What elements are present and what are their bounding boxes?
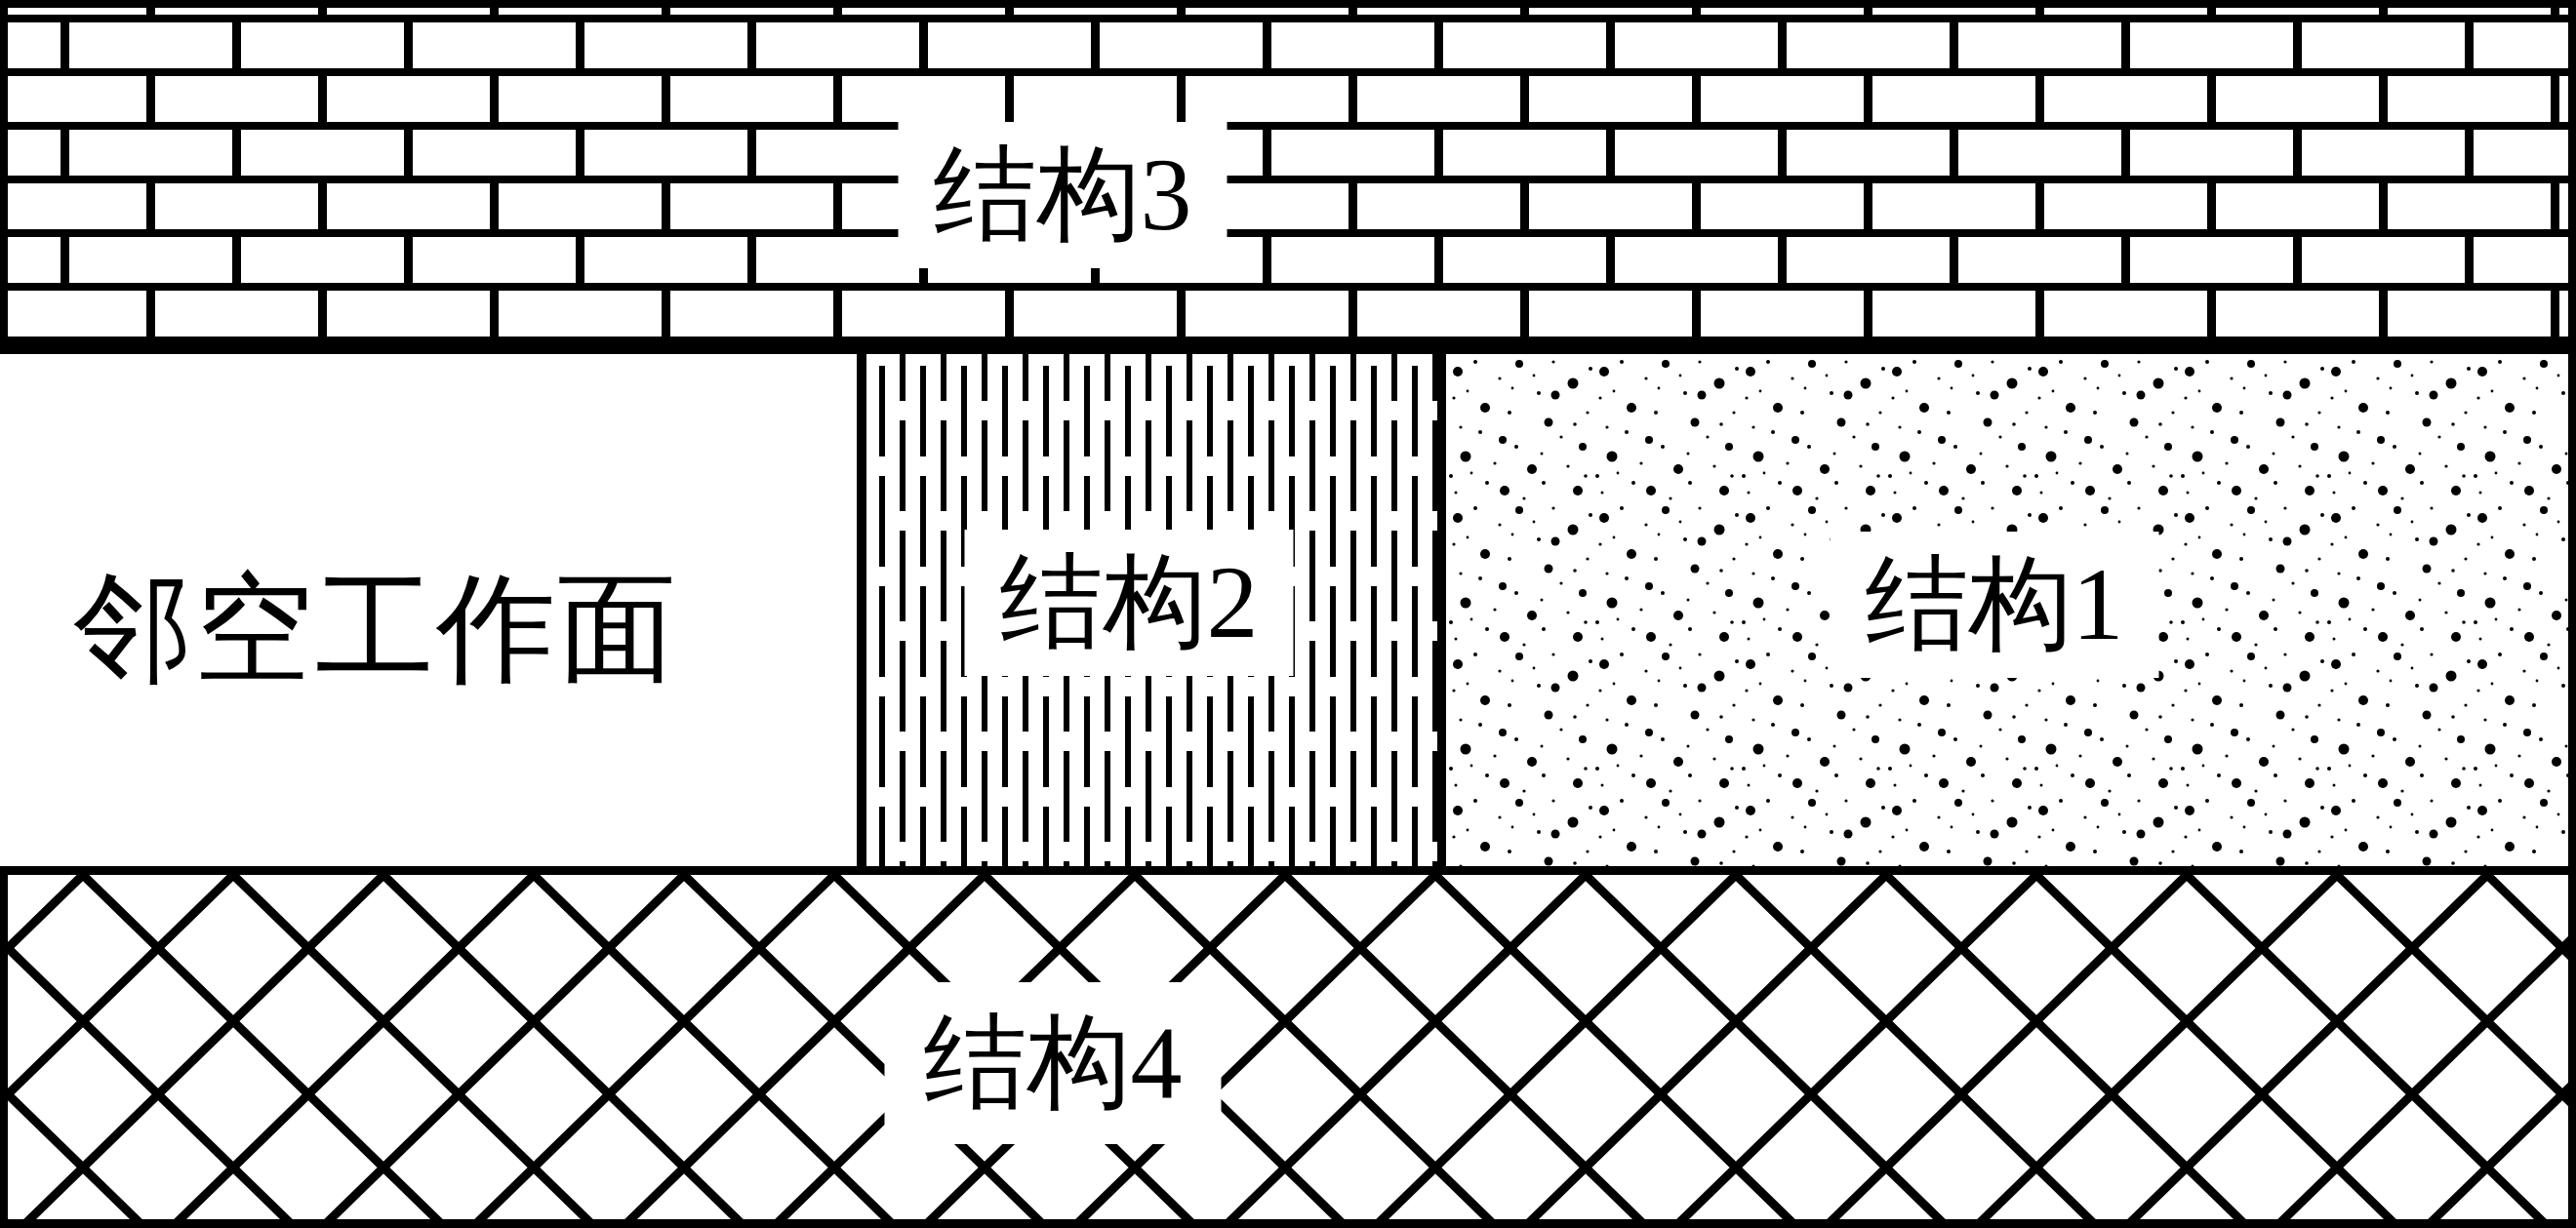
structure2-label: 结构2 [965,530,1294,676]
structure3-region [8,8,2568,344]
structure4-label: 结构4 [885,982,1222,1144]
bottom-band-left-border [0,866,8,1228]
structure3-label: 结构3 [899,122,1228,268]
top-band-top-border [0,0,2576,8]
mining-layout-diagram: 结构3 邻空工作面 结构2 结构1 结构4 [0,0,2576,1228]
bottom-band-right-border [2568,866,2576,1228]
bottom-band-bottom-border [0,1219,2576,1228]
workface-structure2-divider [857,354,866,868]
top-band-bottom-border [0,344,2576,354]
structure2-structure1-divider [1437,354,1446,868]
workface-label: 邻空工作面 [73,570,678,689]
structure1-label: 结构1 [1831,532,2159,678]
bottom-band-top-border [0,866,2576,875]
structure4-region [8,875,2568,1219]
middle-right-border [2568,354,2576,868]
top-band-right-border [2568,0,2576,354]
top-band-left-border [0,0,8,354]
